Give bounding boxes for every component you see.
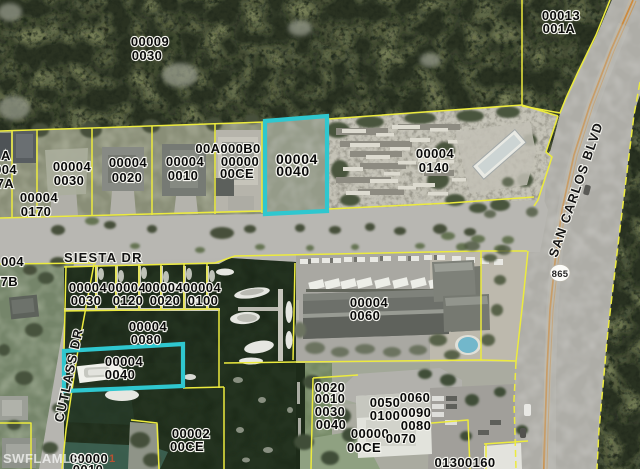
svg-text:0100: 0100 xyxy=(188,293,219,308)
svg-text:01300160: 01300160 xyxy=(434,455,495,469)
svg-text:0100: 0100 xyxy=(370,408,401,423)
svg-text:004: 004 xyxy=(1,254,24,269)
svg-text:7B: 7B xyxy=(1,274,18,289)
svg-text:0030: 0030 xyxy=(71,293,102,308)
svg-text:004: 004 xyxy=(0,162,17,177)
svg-text:0020: 0020 xyxy=(112,170,143,185)
svg-text:0020: 0020 xyxy=(150,293,181,308)
svg-text:00000: 00000 xyxy=(351,426,389,441)
svg-text:7A: 7A xyxy=(0,176,14,191)
svg-text:0060: 0060 xyxy=(400,390,431,405)
svg-text:1: 1 xyxy=(109,453,115,465)
svg-text:0120: 0120 xyxy=(113,293,144,308)
svg-text:0010: 0010 xyxy=(168,168,199,183)
svg-text:00CE: 00CE xyxy=(170,439,204,454)
svg-text:00004: 00004 xyxy=(166,154,205,169)
svg-text:00004: 00004 xyxy=(109,155,148,170)
svg-text:0040: 0040 xyxy=(316,417,347,432)
svg-text:SIESTA DR: SIESTA DR xyxy=(64,250,143,265)
svg-text:SWFLAMLS: SWFLAMLS xyxy=(3,451,81,466)
svg-text:A: A xyxy=(1,148,11,163)
svg-text:0030: 0030 xyxy=(132,48,163,63)
svg-text:0170: 0170 xyxy=(21,204,52,219)
svg-text:0070: 0070 xyxy=(386,431,417,446)
svg-text:00CE: 00CE xyxy=(220,166,254,181)
svg-text:0140: 0140 xyxy=(419,160,450,175)
svg-text:0040: 0040 xyxy=(105,367,136,382)
svg-text:00004: 00004 xyxy=(416,146,455,161)
svg-text:0060: 0060 xyxy=(350,308,381,323)
svg-text:865: 865 xyxy=(552,269,569,280)
svg-text:0040: 0040 xyxy=(276,163,310,179)
svg-text:00CE: 00CE xyxy=(347,440,381,455)
svg-text:00009: 00009 xyxy=(131,34,169,49)
svg-text:0080: 0080 xyxy=(131,332,162,347)
svg-text:00004: 00004 xyxy=(20,190,59,205)
svg-text:0030: 0030 xyxy=(54,173,85,188)
svg-text:001A: 001A xyxy=(543,21,576,36)
svg-text:00004: 00004 xyxy=(53,159,92,174)
